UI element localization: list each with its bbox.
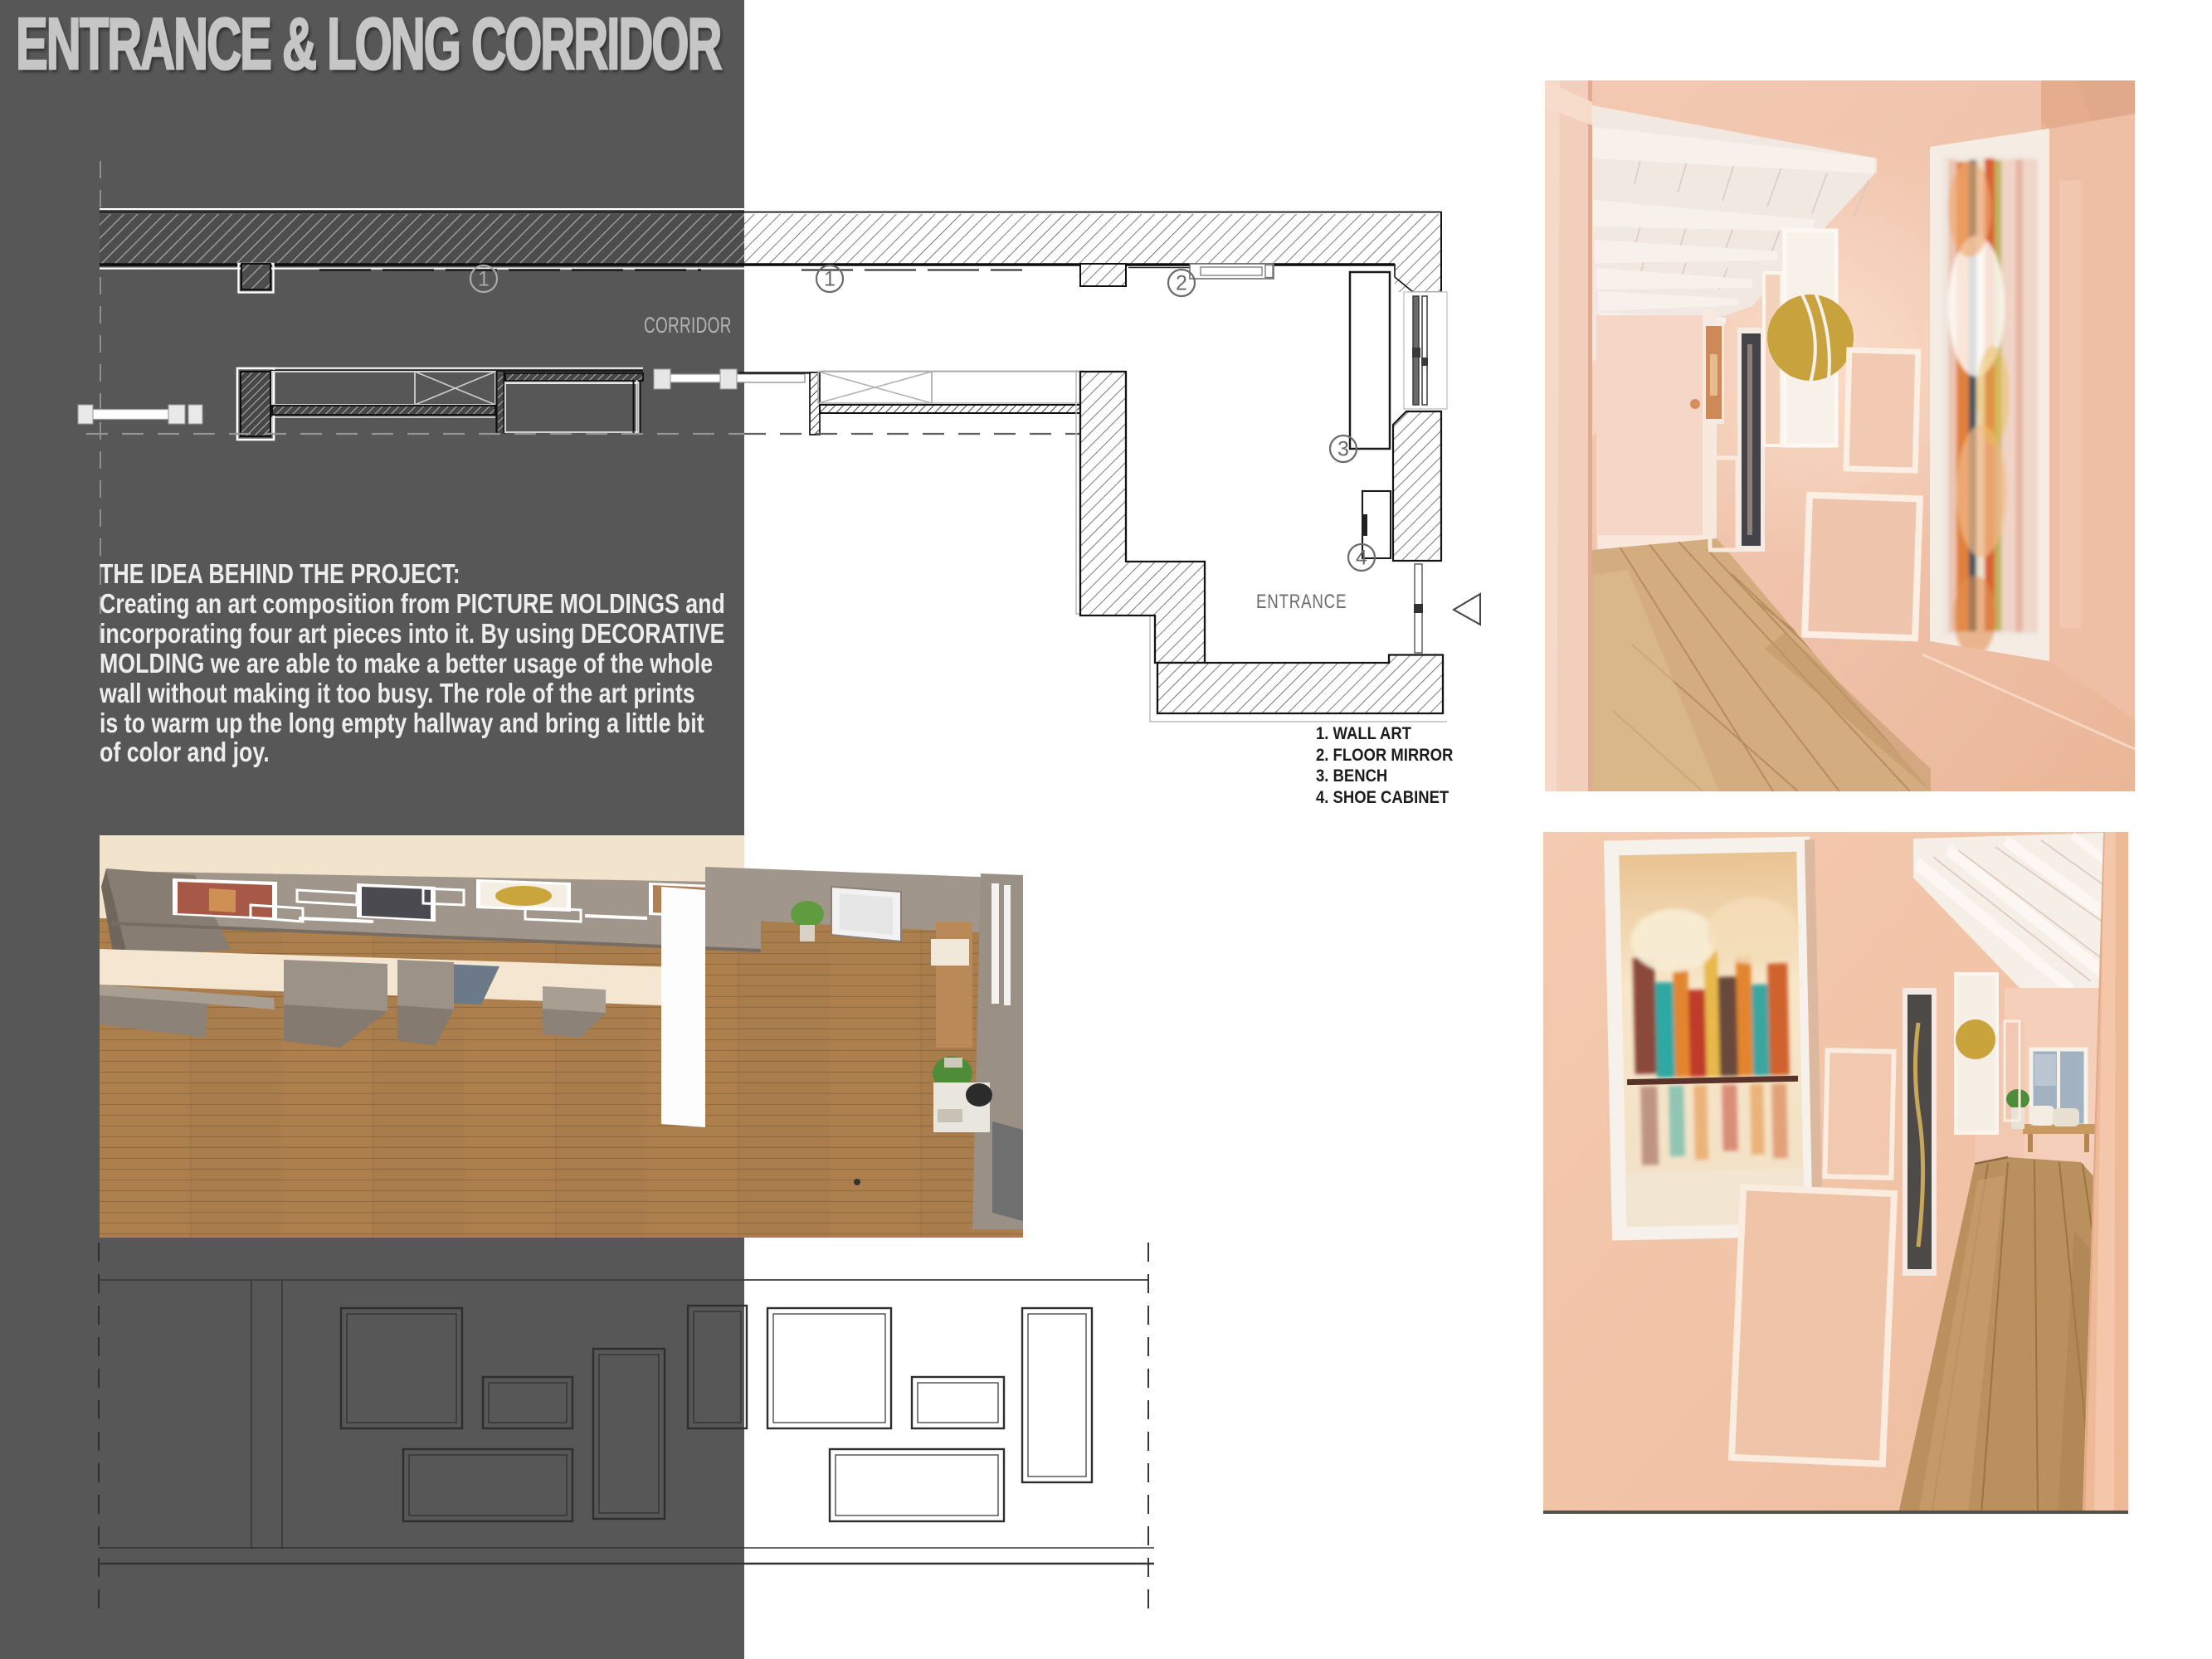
- svg-text:1: 1: [824, 268, 836, 291]
- svg-text:4: 4: [1356, 547, 1367, 570]
- svg-text:3: 3: [1337, 438, 1349, 461]
- svg-text:2: 2: [1176, 272, 1187, 295]
- svg-text:1: 1: [478, 268, 490, 291]
